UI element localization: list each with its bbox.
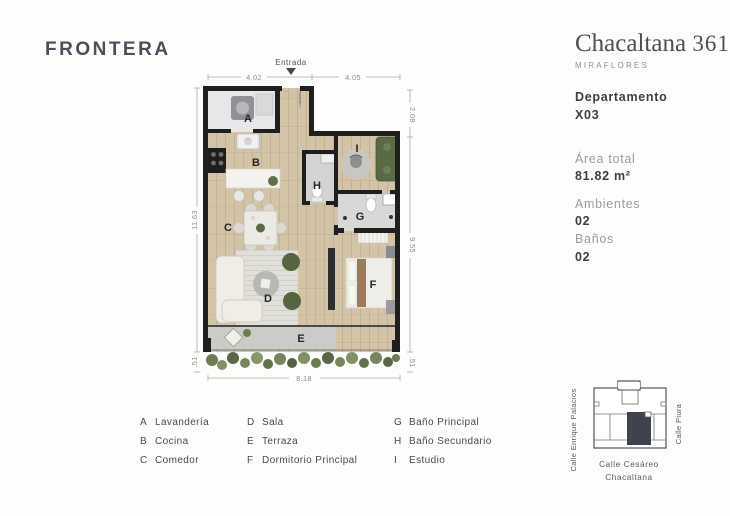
dim-right-mid: 9.55 <box>408 237 417 253</box>
room-label-bath2: H <box>313 180 321 192</box>
dim-right-top: 2.08 <box>408 107 417 123</box>
room-label-dining: C <box>224 222 232 234</box>
legend-item-lavanderia: ALavandería <box>140 413 209 432</box>
legend-item-estudio: IEstudio <box>394 451 492 470</box>
legend-item-comedor: CComedor <box>140 451 209 470</box>
legend-item-terraza: ETerraza <box>247 432 357 451</box>
glass-facade <box>205 325 398 327</box>
legend-label: Estudio <box>409 455 445 466</box>
legend-letter: I <box>394 451 409 470</box>
legend-letter: D <box>247 413 262 432</box>
street-left-label: Calle Enrique Palacios <box>569 388 578 471</box>
dim-right-bottom: .51 <box>408 356 417 367</box>
legend-letter: H <box>394 432 409 451</box>
dim-bottom: 8.18 <box>296 374 312 383</box>
legend-item-dormitorio: FDormitorio Principal <box>247 451 357 470</box>
legend-letter: E <box>247 432 262 451</box>
room-label-living: D <box>264 293 272 305</box>
legend-letter: F <box>247 451 262 470</box>
room-label-kitchen: B <box>252 157 260 169</box>
room-label-terrace: E <box>297 333 304 345</box>
entrance-label: Entrada <box>275 58 307 67</box>
legend-label: Lavandería <box>155 417 209 428</box>
street-right-label: Calle Piura <box>674 403 683 444</box>
legend-letter: B <box>140 432 155 451</box>
brochure-sheet: FRONTERA Chacaltana 361 MIRAFLORES Depar… <box>0 0 730 516</box>
room-label-laundry: A <box>244 113 252 125</box>
street-bottom-label-1: Calle Cesáreo <box>599 460 659 469</box>
legend-label: Terraza <box>262 436 298 447</box>
entrance-arrow-icon <box>286 68 296 75</box>
legend-column-2: DSala ETerraza FDormitorio Principal <box>247 413 357 470</box>
legend-item-cocina: BCocina <box>140 432 209 451</box>
planter-greenery <box>206 352 400 370</box>
legend-letter: A <box>140 413 155 432</box>
site-map: Calle Enrique Palacios Calle Piura Calle… <box>569 381 683 482</box>
legend-letter: C <box>140 451 155 470</box>
legend-label: Dormitorio Principal <box>262 455 357 466</box>
legend-label: Baño Secundario <box>409 436 492 447</box>
dim-left-bottom: .51 <box>190 356 199 367</box>
legend-label: Sala <box>262 417 284 428</box>
dim-left: 11.63 <box>190 210 199 230</box>
room-label-study: I <box>355 143 358 155</box>
room-label-bedroom: F <box>370 279 377 291</box>
legend-label: Baño Principal <box>409 417 479 428</box>
legend-item-sala: DSala <box>247 413 357 432</box>
legend-label: Cocina <box>155 436 189 447</box>
room-label-bath1: G <box>356 211 365 223</box>
floor-plan-graphic: A B C D E F G H I Entrada 4.02 4.05 2.08… <box>0 0 730 516</box>
legend-item-bano-secundario: HBaño Secundario <box>394 432 492 451</box>
legend-label: Comedor <box>155 455 199 466</box>
legend-column-3: GBaño Principal HBaño Secundario IEstudi… <box>394 413 492 470</box>
legend-item-bano-principal: GBaño Principal <box>394 413 492 432</box>
legend-letter: G <box>394 413 409 432</box>
legend-column-1: ALavandería BCocina CComedor <box>140 413 209 470</box>
dim-top-left: 4.02 <box>246 73 262 82</box>
street-bottom-label-2: Chacaltana <box>605 473 652 482</box>
dim-top-right: 4.05 <box>345 73 361 82</box>
